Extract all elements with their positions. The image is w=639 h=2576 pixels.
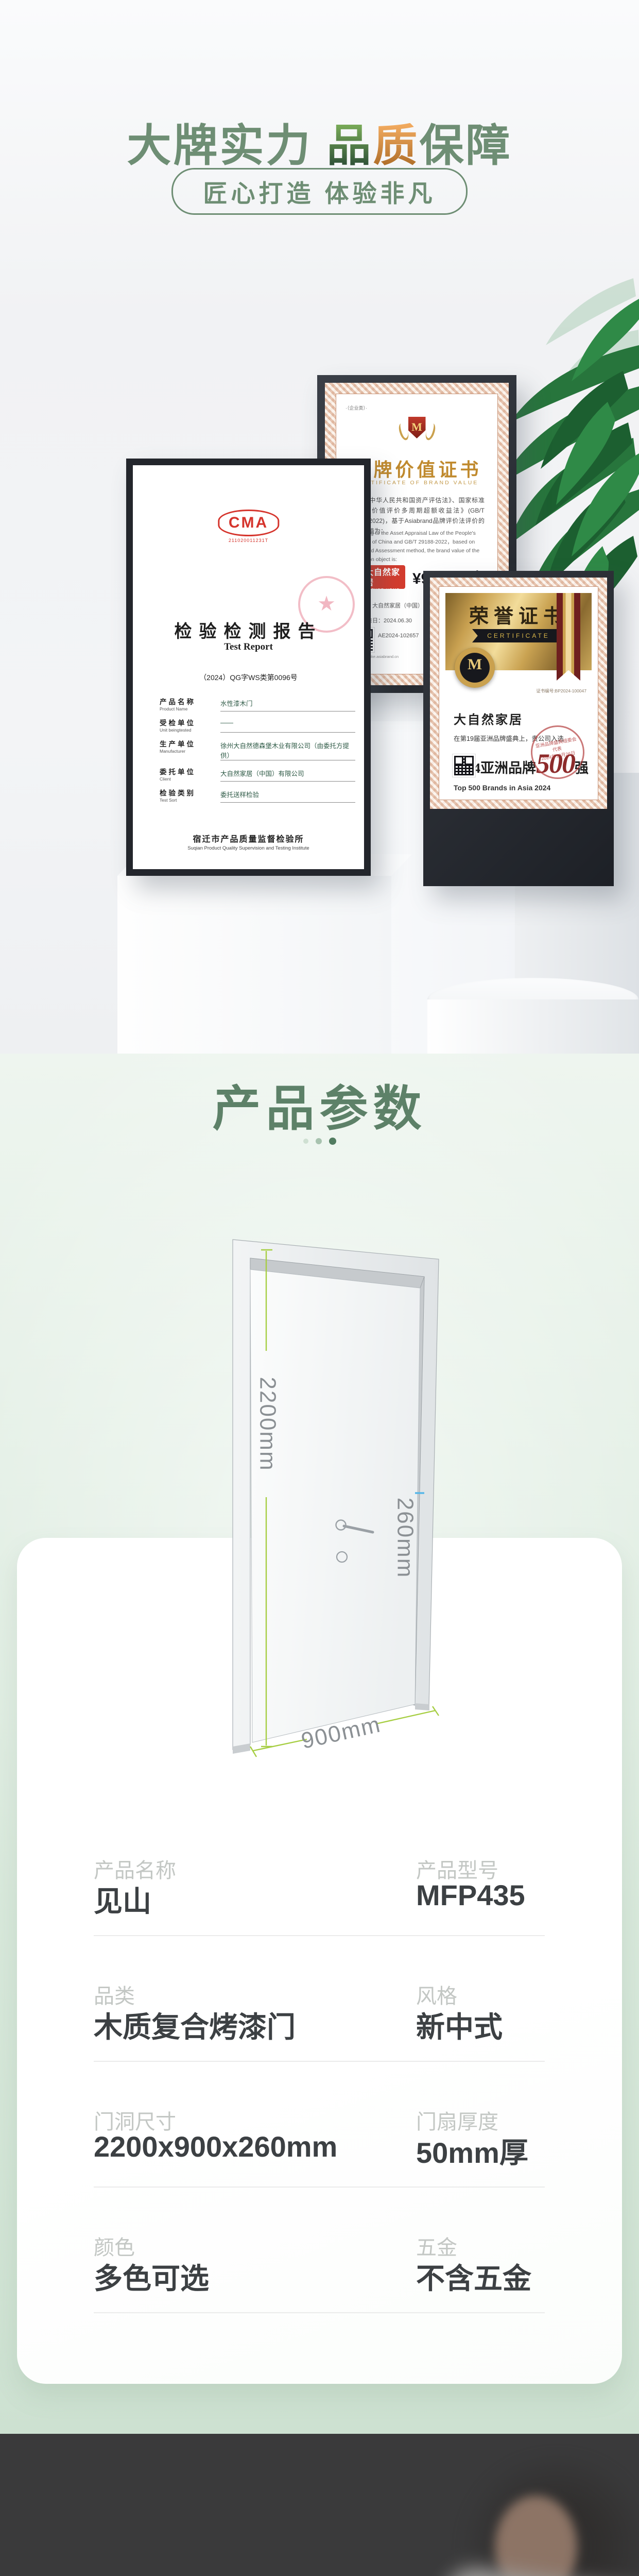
hero-title-tail: 保障 xyxy=(419,121,512,171)
institute-name: 宿迁市产品质量监督检验所 xyxy=(133,832,364,844)
param-value: 50mm厚 xyxy=(416,2130,528,2172)
test-report-title-en: Test Report xyxy=(133,641,364,653)
param-value: 2200x900x260mm xyxy=(94,2130,337,2163)
brand-cert-medal-icon: M xyxy=(401,417,434,447)
field-value: 大自然家居（中国）有限公司 xyxy=(220,766,355,782)
medal-letter: M xyxy=(408,420,426,434)
service-section: 金保姆服务 全国1000+实体门店支持 咨询下单 › 上门量尺 › 签订合同 xyxy=(0,2434,639,2576)
institute-name-en: Suqian Product Quality Supervision and T… xyxy=(133,845,364,851)
certificate-test-report: CMA 211020011231T 检验检测报告 Test Report （20… xyxy=(126,459,371,876)
field-label: 检验类别 xyxy=(160,787,220,798)
param-value: 见山 xyxy=(94,1878,151,1920)
field-label-en: Unit beingtested xyxy=(160,727,220,733)
field-label: 生产单位 xyxy=(160,738,220,749)
section-dots-decoration xyxy=(0,1137,639,1146)
param-value: 新中式 xyxy=(416,2004,503,2046)
param-value: MFP435 xyxy=(416,1878,525,1912)
honor-medal-icon: M xyxy=(455,648,495,688)
field-label-en: Manufacturer xyxy=(160,749,220,754)
param-value: 不含五金 xyxy=(416,2256,531,2297)
divider xyxy=(94,2187,545,2188)
field-label: 委托单位 xyxy=(160,766,220,776)
field-value: 委托送样检验 xyxy=(220,787,355,803)
divider xyxy=(94,2061,545,2062)
pedestal-cylinder-body xyxy=(427,999,638,1054)
honor-cert-number: 证书编号:BP2024-100047 xyxy=(536,688,586,694)
test-report-field-row: 生产单位Manufacturer 徐州大自然德森堡木业有限公司（由委托方提供） xyxy=(160,738,355,760)
test-report-field-row: 委托单位Client 大自然家居（中国）有限公司 xyxy=(160,766,355,782)
divider xyxy=(94,1935,545,1936)
hero-subtitle: 匠心打造 体验非凡 xyxy=(171,168,467,215)
qr-code xyxy=(453,754,475,777)
field-label-en: Test Sort xyxy=(160,798,220,803)
hero-title-lead: 大牌实力 xyxy=(127,121,327,171)
honor-ribbon-icon xyxy=(557,593,580,681)
brand-cert-category: ·（企业类）· xyxy=(346,404,367,411)
test-report-field-row: 受检单位Unit beingtested —— xyxy=(160,717,355,733)
field-value: 水性漆木门 xyxy=(220,696,355,711)
honor-brand-name: 大自然家居 xyxy=(454,709,523,727)
param-value: 木质复合烤漆门 xyxy=(94,2004,296,2046)
honor-award-title-en: Top 500 Brands in Asia 2024 xyxy=(454,784,550,792)
divider xyxy=(94,2312,545,2313)
pedestal-cube-front xyxy=(117,876,391,1054)
certificate-honor: 荣誉证书 CERTIFICATE M 证书编号:BP2024-100047 大自… xyxy=(423,571,614,886)
medal-letter: M xyxy=(455,656,495,673)
field-label-en: Product Name xyxy=(160,706,220,711)
hero-subtitle-wrap: 匠心打造 体验非凡 xyxy=(0,168,639,215)
customer-service-photo xyxy=(351,2434,639,2576)
hero-title-char-zhi: 质 xyxy=(373,121,419,171)
field-value: —— xyxy=(220,717,355,733)
test-report-title: 检验检测报告 xyxy=(133,617,364,642)
params-section-title: 产品参数 xyxy=(0,1070,639,1140)
hero-title: 大牌实力 品质保障 xyxy=(0,109,639,174)
field-label: 产品名称 xyxy=(160,696,220,706)
test-report-field-row: 检验类别Test Sort 委托送样检验 xyxy=(160,787,355,803)
test-report-field-row: 产品名称Product Name 水性漆木门 xyxy=(160,696,355,711)
field-label-en: Client xyxy=(160,776,220,782)
field-value: 徐州大自然德森堡木业有限公司（由委托方提供） xyxy=(220,738,355,760)
test-report-number: （2024）QG字WS类第0096号 xyxy=(133,672,364,683)
certificate-ornate-border: 荣誉证书 CERTIFICATE M 证书编号:BP2024-100047 大自… xyxy=(430,578,607,809)
param-value: 多色可选 xyxy=(94,2256,209,2297)
product-detail-page: 大牌实力 品质保障 匠心打造 体验非凡 xyxy=(0,0,639,2576)
field-label: 受检单位 xyxy=(160,717,220,727)
cma-logo: CMA xyxy=(218,510,279,536)
cma-number: 211020011231T xyxy=(218,538,279,543)
honor-title-banner: CERTIFICATE xyxy=(472,629,565,642)
hero-title-char-pin: 品 xyxy=(326,121,373,171)
